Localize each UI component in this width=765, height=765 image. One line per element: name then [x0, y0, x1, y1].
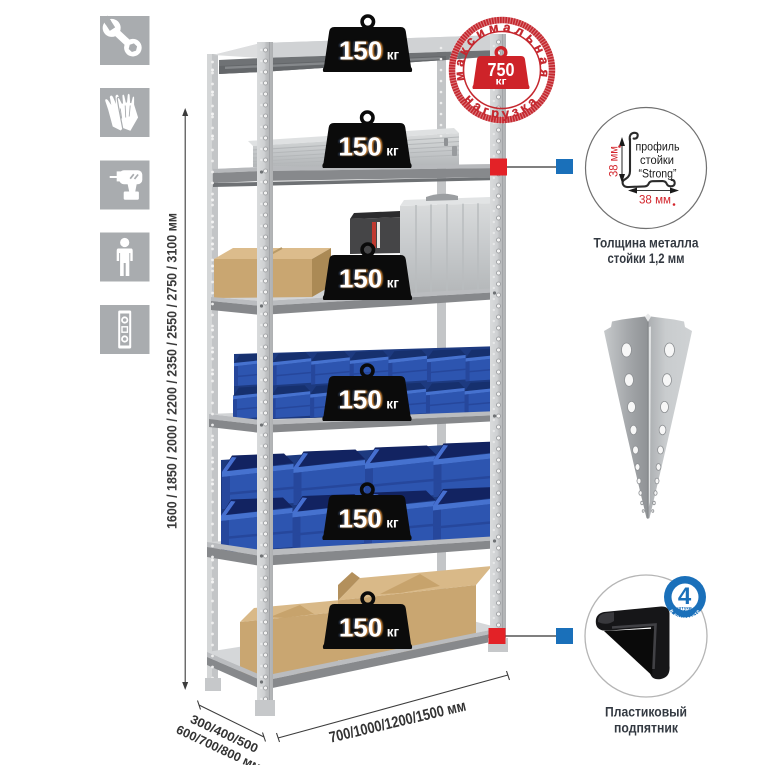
svg-text:38 мм: 38 мм [609, 146, 621, 177]
svg-text:1600 / 1850 / 2000 / 2200 / 23: 1600 / 1850 / 2000 / 2200 / 2350 / 2550 … [165, 213, 180, 529]
svg-text:стойки 1,2 мм: стойки 1,2 мм [608, 251, 685, 266]
svg-text:стойки: стойки [640, 153, 674, 167]
svg-text:38 мм: 38 мм [639, 195, 671, 207]
svg-text:Толщина металла: Толщина металла [594, 236, 699, 251]
svg-text:“Strong”: “Strong” [639, 167, 677, 181]
svg-text:профиль: профиль [636, 140, 680, 154]
svg-text:подпятник: подпятник [614, 721, 678, 736]
svg-text:штуки: штуки [677, 607, 692, 612]
svg-text:Пластиковый: Пластиковый [605, 705, 687, 720]
svg-text:кг: кг [496, 77, 507, 88]
